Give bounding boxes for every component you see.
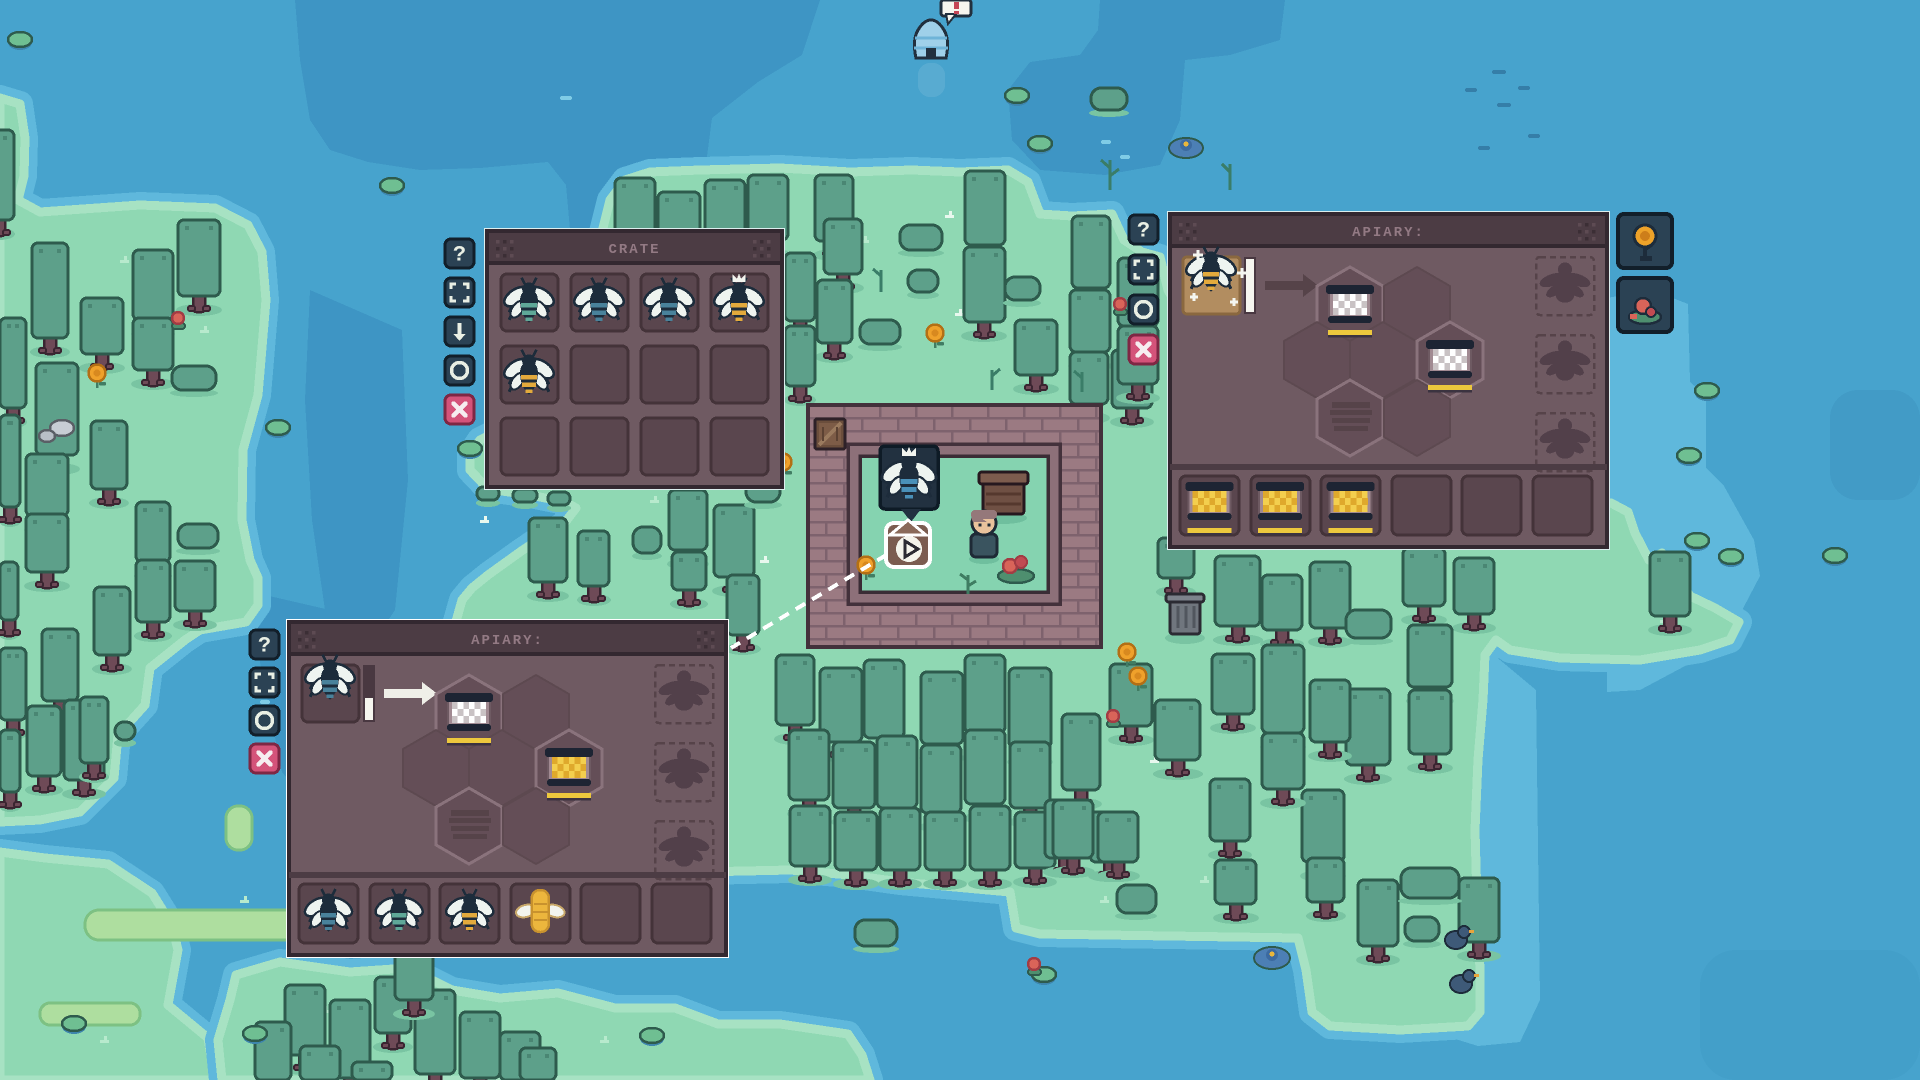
svg-text:APIARY:: APIARY: [1352, 225, 1425, 241]
svg-text:?: ? [453, 243, 466, 268]
svg-text:APIARY:: APIARY: [471, 633, 544, 649]
svg-text:CRATE: CRATE [608, 242, 660, 258]
svg-text:?: ? [258, 634, 271, 659]
svg-text:?: ? [1137, 219, 1150, 244]
